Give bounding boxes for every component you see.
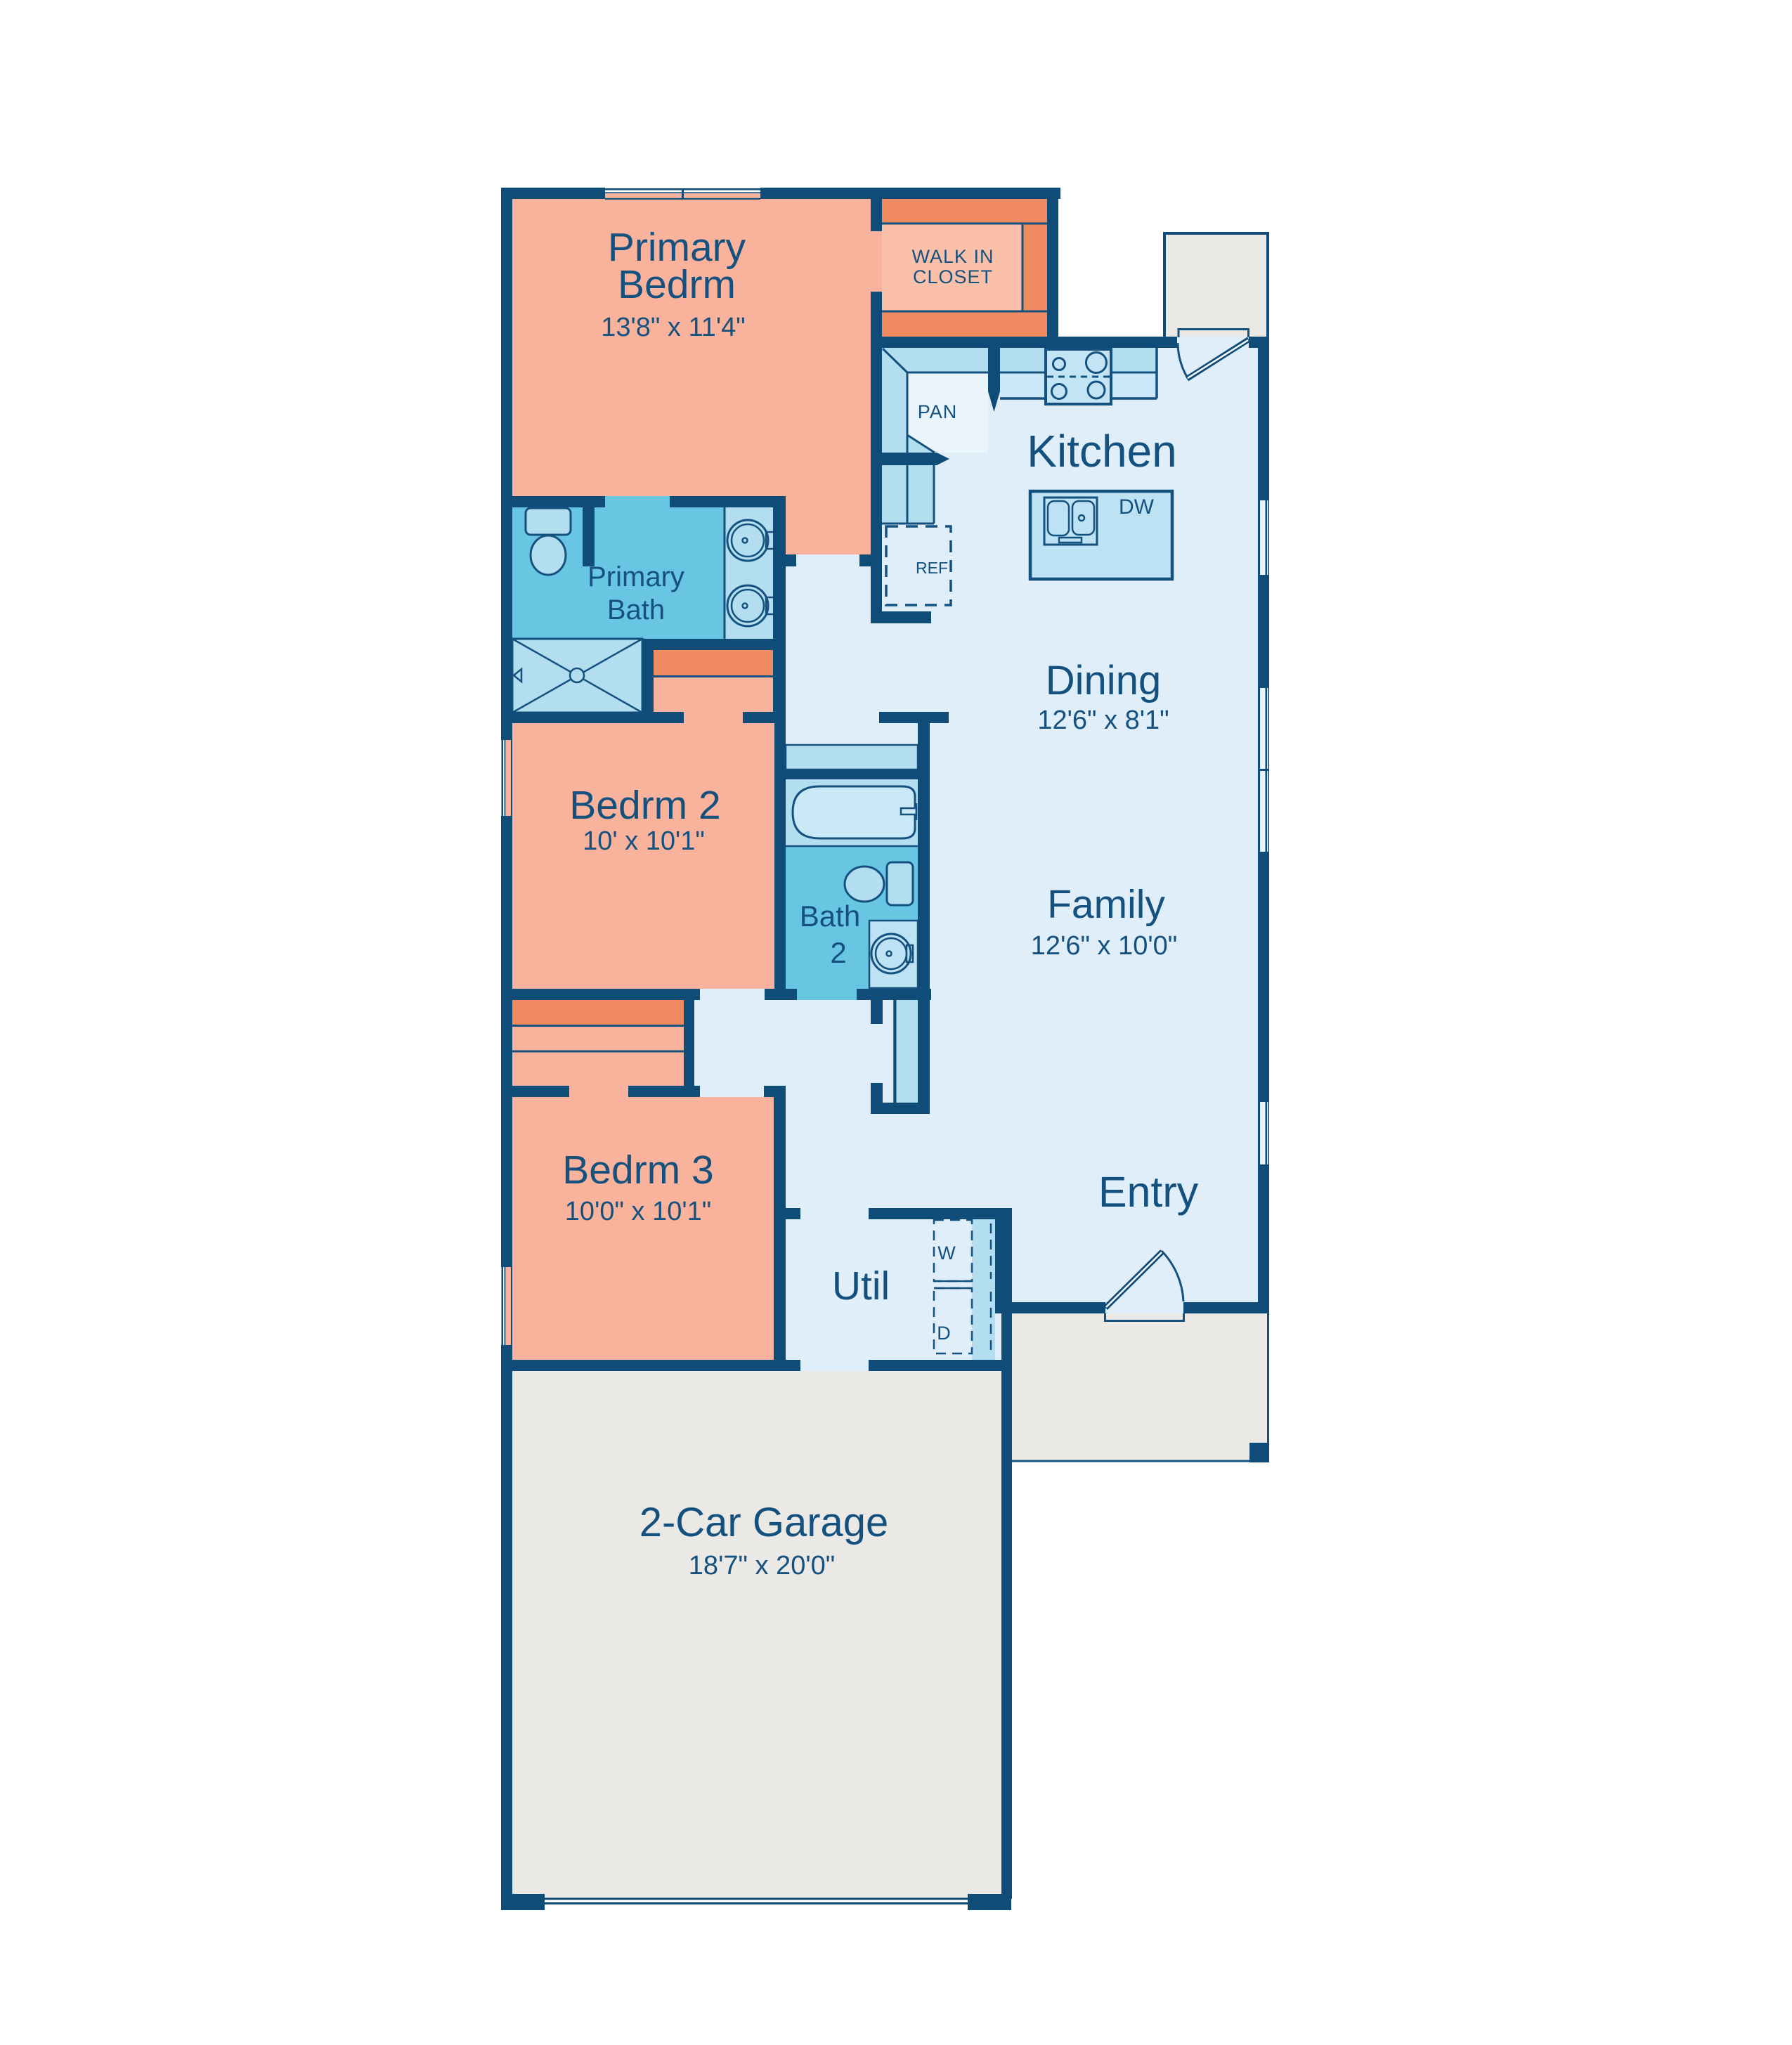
svg-text:Primary: Primary [587,561,684,592]
svg-text:2-Car Garage: 2-Car Garage [639,1500,889,1545]
svg-text:Util: Util [832,1264,890,1309]
svg-text:WALK IN: WALK IN [911,246,994,267]
svg-text:10' x 10'1": 10' x 10'1" [583,826,705,856]
svg-text:DW: DW [1119,495,1155,519]
svg-text:18'7" x 20'0": 18'7" x 20'0" [689,1551,835,1580]
svg-text:13'8" x 11'4": 13'8" x 11'4" [601,313,746,342]
svg-text:Kitchen: Kitchen [1027,426,1176,476]
svg-text:CLOSET: CLOSET [913,266,993,287]
svg-text:Bath: Bath [800,900,860,933]
svg-text:12'6" x 10'0": 12'6" x 10'0" [1031,931,1177,961]
svg-text:Bedrm 3: Bedrm 3 [562,1148,713,1193]
svg-text:Dining: Dining [1046,658,1161,703]
svg-text:REF: REF [916,559,948,577]
svg-text:2: 2 [830,936,846,969]
svg-text:PAN: PAN [918,401,958,422]
svg-text:Entry: Entry [1098,1168,1199,1216]
svg-text:12'6" x 8'1": 12'6" x 8'1" [1037,706,1169,735]
svg-text:W: W [937,1242,956,1264]
svg-text:Bedrm: Bedrm [618,262,736,307]
svg-text:10'0" x 10'1": 10'0" x 10'1" [565,1197,711,1226]
svg-text:Bath: Bath [607,595,665,625]
svg-text:Bedrm 2: Bedrm 2 [569,783,720,828]
svg-text:Family: Family [1047,882,1165,927]
svg-text:D: D [937,1323,951,1344]
